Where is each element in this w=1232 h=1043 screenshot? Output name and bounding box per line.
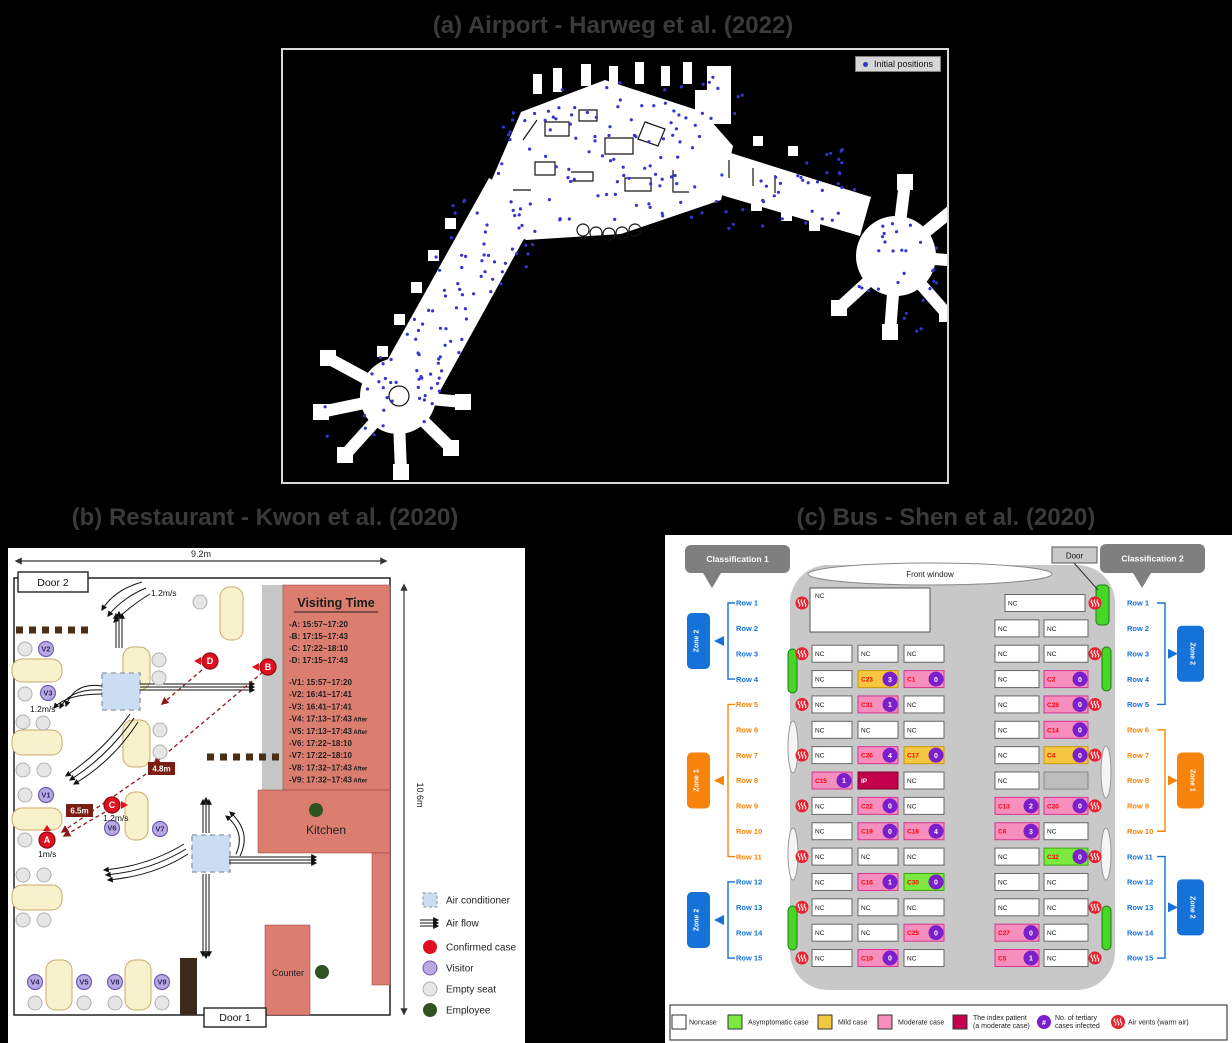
initial-position-dot: [406, 333, 409, 336]
initial-position-dot: [569, 123, 572, 126]
svg-text:NC: NC: [861, 854, 871, 861]
width-dimension-label: 9.2m: [191, 549, 211, 559]
row-label-left-5: Row 5: [736, 700, 758, 709]
seat-C20: C200: [1044, 797, 1088, 814]
initial-position-dot: [420, 377, 423, 380]
initial-position-dot: [512, 111, 515, 114]
wall-red-strip: [372, 853, 390, 985]
initial-position-dot: [670, 175, 673, 178]
svg-text:NC: NC: [907, 803, 917, 810]
row-label-right-2: Row 2: [1127, 624, 1149, 633]
svg-text:C30: C30: [907, 879, 919, 886]
svg-text:V5: V5: [79, 978, 88, 987]
svg-text:Empty seat: Empty seat: [446, 985, 496, 996]
initial-position-dot: [366, 387, 369, 390]
initial-position-dot: [424, 394, 427, 397]
row-label-left-10: Row 10: [736, 827, 762, 836]
initial-position-dot: [511, 118, 514, 121]
seat-C6: C63: [995, 823, 1039, 840]
seat-IP: IP: [858, 772, 898, 789]
initial-position-dot: [654, 173, 657, 176]
svg-text:2: 2: [1029, 804, 1033, 811]
seat-NC: NC: [904, 899, 944, 916]
svg-text:C17: C17: [907, 753, 919, 760]
initial-position-dot: [659, 156, 662, 159]
initial-position-dot: [676, 156, 679, 159]
initial-position-dot: [811, 210, 814, 213]
svg-text:4.8m: 4.8m: [152, 765, 170, 774]
seat-NC: NC: [812, 873, 852, 890]
table: [220, 587, 243, 640]
initial-position-dot: [382, 409, 385, 412]
initial-position-dot: [684, 116, 687, 119]
initial-position-dot: [905, 312, 908, 315]
svg-text:6.5m: 6.5m: [70, 807, 88, 816]
visiting-time-case: -A: 15:57~17:20: [289, 620, 348, 629]
initial-position-dot: [622, 166, 625, 169]
initial-position-dot: [724, 210, 727, 213]
height-dimension-label: 10.6m: [415, 782, 425, 807]
initial-position-dot: [635, 204, 638, 207]
row-label-right-15: Row 15: [1127, 954, 1153, 963]
initial-position-dot: [500, 162, 503, 165]
initial-position-dot: [391, 400, 394, 403]
initial-position-dot: [663, 88, 666, 91]
initial-position-dot: [647, 140, 650, 143]
svg-text:NC: NC: [907, 651, 917, 658]
air-conditioner: [192, 835, 230, 872]
visiting-time-visitor: -V2: 16:41~17:41: [289, 690, 352, 699]
svg-text:Zone 2: Zone 2: [694, 909, 701, 932]
empty-seat: [18, 687, 32, 701]
initial-position-dot: [527, 252, 530, 255]
visiting-time-visitor: -V1: 15:57~17:20: [289, 678, 352, 687]
initial-position-dot: [443, 289, 446, 292]
svg-text:V4: V4: [30, 978, 40, 987]
svg-text:C22: C22: [861, 803, 873, 810]
pillar: [180, 958, 197, 1015]
initial-position-dot: [379, 356, 382, 359]
flow-speed-label: 1m/s: [38, 849, 56, 859]
initial-position-dot: [628, 177, 631, 180]
initial-position-dot: [524, 244, 527, 247]
seat-NC: NC: [995, 671, 1039, 688]
initial-position-dot: [630, 118, 633, 121]
seat-C30: C300: [904, 873, 944, 890]
initial-position-dot: [709, 117, 712, 120]
row-label-left-8: Row 8: [736, 776, 758, 785]
initial-position-dot: [935, 246, 938, 249]
svg-text:C18: C18: [907, 829, 919, 836]
seat-NC: NC: [904, 645, 944, 662]
empty-seat: [16, 715, 30, 729]
initial-position-dot: [881, 235, 884, 238]
initial-position-dot: [698, 135, 701, 138]
initial-position-dot: [529, 202, 532, 205]
initial-position-dot: [370, 372, 373, 375]
air-conditioner: [102, 673, 140, 710]
initial-position-dot: [821, 217, 824, 220]
svg-text:NC: NC: [861, 651, 871, 658]
initial-position-dot: [573, 106, 576, 109]
svg-text:0: 0: [1078, 677, 1082, 684]
flow-speed-label: 1.2m/s: [103, 813, 129, 823]
initial-position-dot: [760, 179, 763, 182]
initial-position-dot: [364, 427, 367, 430]
svg-text:0: 0: [934, 930, 938, 937]
seat-NC: NC: [995, 645, 1039, 662]
seat-C14: C140: [1044, 721, 1088, 738]
initial-position-dot: [491, 278, 494, 281]
svg-text:C20: C20: [1047, 803, 1059, 810]
air-vent-icon: [1089, 850, 1102, 863]
initial-position-dot: [480, 275, 483, 278]
svg-text:C6: C6: [998, 829, 1007, 836]
seat-C1: C10: [904, 671, 944, 688]
initial-position-dot: [452, 204, 455, 207]
svg-text:NC: NC: [1047, 651, 1057, 658]
svg-text:C16: C16: [861, 879, 873, 886]
initial-position-dot: [609, 159, 612, 162]
empty-seat: [152, 671, 166, 685]
airport-legend-label: Initial positions: [874, 59, 933, 69]
svg-text:NC: NC: [998, 626, 1008, 633]
seat-NC: NC: [995, 747, 1039, 764]
svg-text:C27: C27: [998, 930, 1010, 937]
noncase-icon: [672, 1015, 686, 1029]
air-vent-icon: [796, 647, 809, 660]
seat-NC: NC: [812, 848, 852, 865]
initial-position-dot: [414, 338, 417, 341]
initial-position-dot: [732, 223, 735, 226]
initial-position-dot: [377, 380, 380, 383]
initial-position-dot: [691, 146, 694, 149]
initial-position-dot: [613, 218, 616, 221]
svg-text:Classification 1: Classification 1: [706, 554, 769, 564]
initial-position-dot: [640, 104, 643, 107]
employee: [315, 965, 329, 979]
air-vent-icon: [796, 698, 809, 711]
open-window: [788, 906, 797, 950]
bus-diagram: Front windowNCNCNCNCNCC233C10NCC311NCNCN…: [665, 535, 1232, 1043]
air-conditioner-icon: [423, 893, 437, 907]
initial-position-dot: [437, 362, 440, 365]
row-label-right-3: Row 3: [1127, 649, 1149, 658]
initial-position-dot: [436, 382, 439, 385]
empty-seat: [16, 868, 30, 882]
initial-position-dot: [690, 216, 693, 219]
open-window: [1102, 647, 1111, 691]
seat-C15: C151: [812, 772, 852, 789]
initial-position-dot: [454, 212, 457, 215]
initial-position-dot: [482, 242, 485, 245]
svg-text:NC: NC: [815, 854, 825, 861]
empty-seat: [153, 745, 167, 759]
row-label-right-14: Row 14: [1127, 928, 1154, 937]
initial-position-dot: [456, 282, 459, 285]
svg-text:Air conditioner: Air conditioner: [446, 896, 511, 907]
initial-position-dot: [909, 224, 912, 227]
table: [125, 960, 151, 1010]
initial-position-dot: [440, 369, 443, 372]
table: [12, 659, 62, 682]
seat-C19: C190: [858, 823, 898, 840]
seat-NC: NC: [995, 848, 1039, 865]
empty-seat: [16, 763, 30, 777]
seat-C22: C220: [858, 797, 898, 814]
svg-text:D: D: [207, 656, 214, 666]
initial-position-dot: [741, 208, 744, 211]
initial-position-dot: [727, 227, 730, 230]
svg-text:1: 1: [888, 880, 892, 887]
panel-b-title: (b) Restaurant - Kwon et al. (2020): [0, 504, 530, 532]
svg-text:Door 2: Door 2: [37, 577, 69, 589]
initial-position-dot: [520, 224, 523, 227]
initial-position-dot: [431, 309, 434, 312]
initial-position-dot: [761, 224, 764, 227]
visiting-time-case: -B: 17:15~17:43: [289, 632, 348, 641]
seat-C18: C184: [904, 823, 944, 840]
table: [12, 885, 62, 910]
initial-position-dot: [460, 254, 463, 257]
initial-position-dot: [737, 95, 740, 98]
svg-text:0: 0: [934, 880, 938, 887]
air-vent-icon: [1089, 799, 1102, 812]
svg-text:Air vents (warm air): Air vents (warm air): [1128, 1020, 1189, 1027]
svg-text:Mild case: Mild case: [838, 1020, 868, 1027]
seat-NC: NC: [812, 645, 852, 662]
empty-seat: [193, 595, 207, 609]
initial-position-dot: [507, 133, 510, 136]
row-label-right-4: Row 4: [1127, 675, 1150, 684]
row-label-left-4: Row 4: [736, 675, 759, 684]
svg-text:0: 0: [888, 829, 892, 836]
initial-position-dot: [932, 280, 935, 283]
svg-text:NC: NC: [998, 677, 1008, 684]
svg-text:#: #: [1042, 1020, 1046, 1027]
initial-position-dot: [548, 198, 551, 201]
svg-text:Air flow: Air flow: [446, 919, 480, 930]
initial-position-dot: [805, 161, 808, 164]
restaurant-legend-item-visitor: Visitor: [423, 961, 474, 975]
svg-text:NC: NC: [998, 778, 1008, 785]
initial-position-dot: [903, 317, 906, 320]
initial-position-dot: [679, 201, 682, 204]
air-vent-icon: [1089, 597, 1102, 610]
svg-text:Zone 1: Zone 1: [694, 769, 701, 792]
svg-text:A: A: [44, 835, 51, 845]
svg-text:NC: NC: [998, 651, 1008, 658]
initial-position-dot: [708, 81, 711, 84]
initial-position-dot: [512, 209, 515, 212]
row-label-right-5: Row 5: [1127, 700, 1149, 709]
initial-position-dot: [326, 435, 329, 438]
initial-position-dot: [415, 369, 418, 372]
svg-text:NC: NC: [815, 956, 825, 963]
initial-position-dot: [829, 152, 832, 155]
restaurant-panel: 9.2m10.6mV1V2V3V4V5V6V7V8V9ABCD4.8m6.5m1…: [8, 548, 525, 1043]
seat-C23: C233: [858, 671, 898, 688]
initial-positions-marker: [863, 62, 868, 67]
restaurant-floorplan: 9.2m10.6mV1V2V3V4V5V6V7V8V9ABCD4.8m6.5m1…: [8, 548, 525, 1043]
svg-text:3: 3: [888, 677, 892, 684]
svg-text:0: 0: [1078, 702, 1082, 709]
initial-position-dot: [429, 373, 432, 376]
initial-position-dot: [588, 150, 591, 153]
seat-C17: C170: [904, 747, 944, 764]
table: [12, 808, 62, 830]
initial-position-dot: [741, 94, 744, 97]
bus-panel: Front windowNCNCNCNCNCC233C10NCC311NCNCN…: [665, 535, 1232, 1043]
air-vent-icon: [796, 749, 809, 762]
initial-position-dot: [417, 378, 420, 381]
row-label-right-11: Row 11: [1127, 852, 1153, 861]
initial-position-dot: [919, 241, 922, 244]
initial-position-dot: [701, 112, 704, 115]
seat-NC: NC: [904, 797, 944, 814]
visiting-time-case: -D: 17:15~17:43: [289, 656, 348, 665]
seat-NC: NC: [858, 899, 898, 916]
svg-text:V3: V3: [43, 689, 52, 698]
initial-position-dot: [438, 390, 441, 393]
row-label-right-10: Row 10: [1127, 827, 1153, 836]
visiting-time-visitor: -V6: 17:22~18:10: [289, 739, 352, 748]
initial-position-dot: [643, 167, 646, 170]
svg-text:C23: C23: [861, 677, 873, 684]
svg-text:Visitor: Visitor: [446, 964, 474, 975]
initial-position-dot: [555, 165, 558, 168]
seat-NC: NC: [904, 848, 944, 865]
initial-position-dot: [716, 87, 719, 90]
initial-position-dot: [480, 259, 483, 262]
initial-position-dot: [781, 217, 784, 220]
row-label-right-13: Row 13: [1127, 903, 1153, 912]
initial-position-dot: [700, 211, 703, 214]
initial-position-dot: [881, 225, 884, 228]
svg-text:Zone 2: Zone 2: [1189, 896, 1196, 919]
initial-position-dot: [465, 317, 468, 320]
svg-text:NC: NC: [815, 677, 825, 684]
initial-position-dot: [658, 184, 661, 187]
svg-text:V1: V1: [41, 791, 50, 800]
restaurant-legend-item-empty: Empty seat: [423, 982, 496, 996]
svg-text:NC: NC: [998, 753, 1008, 760]
initial-position-dot: [504, 262, 507, 265]
seat-C27: C270: [995, 924, 1039, 941]
initial-position-dot: [557, 106, 560, 109]
row-label-left-14: Row 14: [736, 928, 763, 937]
initial-position-dot: [549, 128, 552, 131]
empty-seat-icon: [423, 982, 437, 996]
row-label-right-8: Row 8: [1127, 776, 1149, 785]
svg-text:NC: NC: [998, 905, 1008, 912]
initial-position-dot: [544, 155, 547, 158]
initial-position-dot: [647, 202, 650, 205]
counter-label: Counter: [272, 968, 304, 978]
initial-position-dot: [533, 230, 536, 233]
initial-position-dot: [421, 323, 424, 326]
panel-a-title: (a) Airport - Harweg et al. (2022): [280, 12, 946, 40]
svg-text:V6: V6: [107, 824, 116, 833]
svg-text:0: 0: [888, 804, 892, 811]
initial-position-dot: [568, 217, 571, 220]
initial-position-dot: [450, 236, 453, 239]
svg-text:C10: C10: [861, 956, 873, 963]
table: [12, 730, 62, 755]
initial-position-dot: [601, 154, 604, 157]
empty-seat: [77, 996, 91, 1010]
seat-C10: C100: [858, 950, 898, 967]
initial-position-dot: [634, 135, 637, 138]
initial-position-dot: [877, 288, 880, 291]
seat-NC: NC: [1044, 645, 1088, 662]
initial-position-dot: [382, 424, 385, 427]
empty-seat: [37, 763, 51, 777]
initial-position-dot: [900, 249, 903, 252]
initial-position-dot: [395, 381, 398, 384]
empty-seat: [153, 723, 167, 737]
seat-NC: NC: [995, 721, 1039, 738]
seat-NC: NC: [812, 696, 852, 713]
initial-position-dot: [463, 199, 466, 202]
svg-text:C28: C28: [1047, 702, 1059, 709]
svg-text:0: 0: [1029, 930, 1033, 937]
row-label-right-1: Row 1: [1127, 599, 1149, 608]
initial-position-dot: [552, 116, 555, 119]
initial-position-dot: [733, 112, 736, 115]
svg-text:Door 1: Door 1: [219, 1012, 251, 1024]
initial-position-dot: [649, 206, 652, 209]
initial-position-dot: [853, 188, 856, 191]
air-vent-icon: [796, 901, 809, 914]
airport-floorplan: [283, 50, 947, 482]
initial-position-dot: [427, 309, 430, 312]
seat-NC: NC: [995, 696, 1039, 713]
svg-text:NC: NC: [1008, 601, 1018, 608]
row-label-right-12: Row 12: [1127, 878, 1153, 887]
seat-C16: C161: [858, 873, 898, 890]
initial-position-dot: [860, 286, 863, 289]
svg-text:V7: V7: [155, 825, 164, 834]
closed-window: [788, 721, 798, 773]
visiting-time-visitor: -V7: 17:22~18:10: [289, 751, 352, 760]
initial-position-dot: [593, 135, 596, 138]
svg-text:B: B: [265, 662, 272, 672]
svg-text:C1: C1: [907, 677, 916, 684]
initial-position-dot: [389, 381, 392, 384]
svg-text:0: 0: [1078, 728, 1082, 735]
svg-text:Door: Door: [1066, 552, 1084, 561]
initial-position-dot: [674, 174, 677, 177]
row-label-right-6: Row 6: [1127, 726, 1149, 735]
initial-position-dot: [675, 127, 678, 130]
seat-NC: NC: [1044, 950, 1088, 967]
svg-text:0: 0: [934, 677, 938, 684]
initial-position-dot: [455, 306, 458, 309]
seat-NC: NC: [995, 620, 1039, 637]
svg-text:NC: NC: [1047, 879, 1057, 886]
initial-position-dot: [796, 174, 799, 177]
air-vent-icon: [796, 799, 809, 812]
row-label-left-13: Row 13: [736, 903, 762, 912]
seat-NC: NC: [858, 645, 898, 662]
mild-icon: [818, 1015, 832, 1029]
initial-position-dot: [423, 398, 426, 401]
initial-position-dot: [574, 137, 577, 140]
svg-text:C: C: [109, 800, 116, 810]
initial-position-dot: [569, 180, 572, 183]
seat-NC: NC: [812, 823, 852, 840]
